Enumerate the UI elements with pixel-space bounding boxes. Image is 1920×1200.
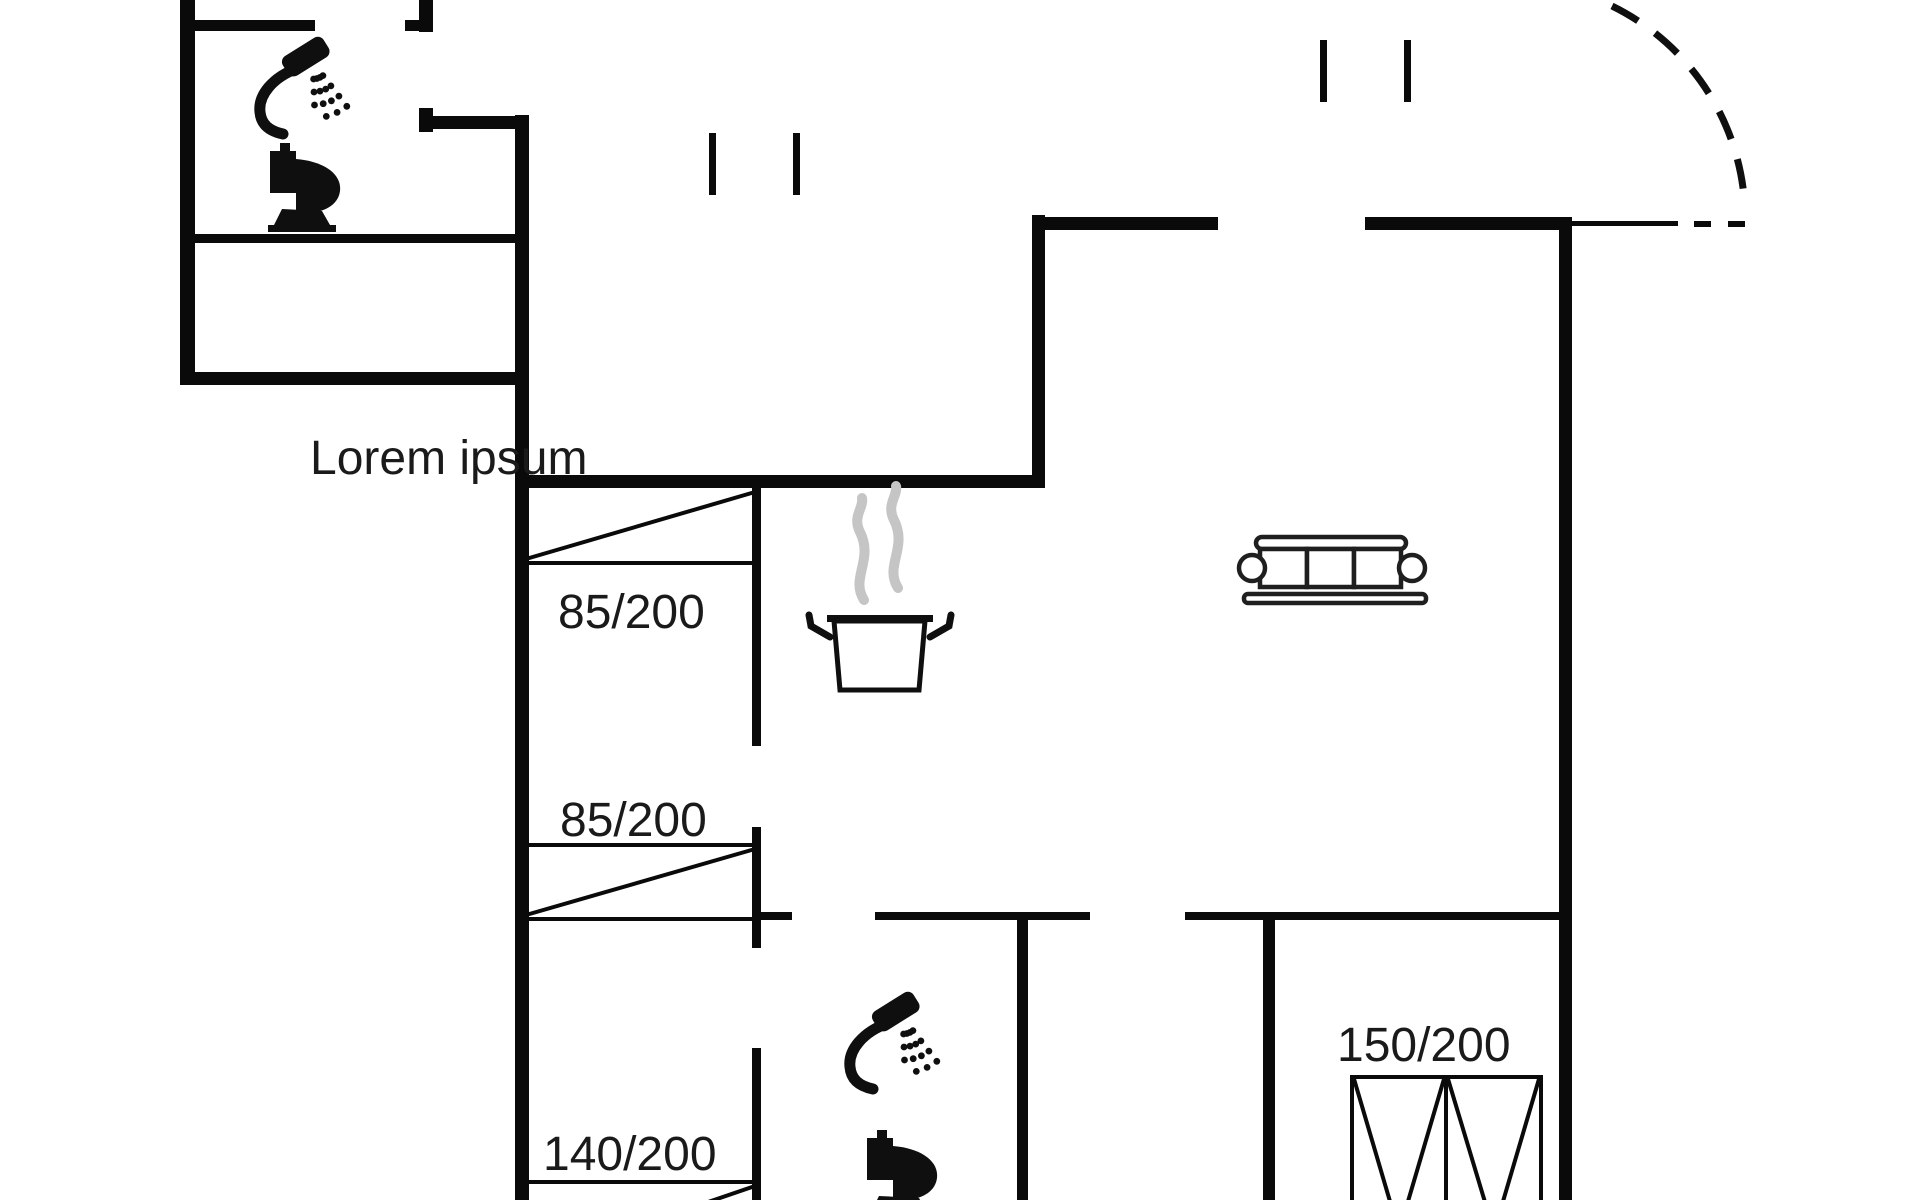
wall-segment — [515, 115, 529, 1200]
wall-segment — [1728, 221, 1745, 227]
wall-segment — [752, 488, 761, 746]
window-symbol-icon: 150/200 — [1337, 1019, 1541, 1200]
steam-icon — [891, 486, 898, 588]
wall-segment — [875, 912, 1090, 920]
floorplan-page: 85/200 85/200 140/200 150/200 Lorem ipsu… — [0, 0, 1920, 1200]
toilet-icon — [865, 1130, 937, 1200]
wall-segment — [180, 0, 195, 385]
wall-segment — [1694, 221, 1711, 227]
tick-mark — [1404, 40, 1411, 102]
sofa-icon — [1239, 537, 1426, 603]
wall-segment — [1263, 914, 1275, 1200]
steam-icon — [857, 498, 864, 600]
door-3: 140/200 — [517, 1128, 757, 1200]
shower-icon — [260, 34, 350, 134]
wall-segment — [752, 1048, 761, 1200]
boundary-tick-marks — [709, 40, 1411, 195]
wall-segment — [758, 912, 792, 920]
wall-segment — [1365, 217, 1565, 230]
wall-segment — [1559, 217, 1572, 1200]
tick-mark — [793, 133, 800, 195]
door-1: 85/200 — [517, 492, 757, 639]
dimension-label-door-2: 85/200 — [560, 794, 707, 847]
wall-segment — [1185, 912, 1566, 920]
shower-icon — [850, 989, 940, 1089]
door-2: 85/200 — [517, 794, 757, 919]
toilet-icon — [268, 143, 340, 232]
wall-segment — [1032, 215, 1045, 488]
dimension-label-window-1: 150/200 — [1337, 1019, 1511, 1072]
dimension-label-door-1: 85/200 — [558, 586, 705, 639]
room-label: Lorem ipsum — [310, 432, 587, 485]
wall-segment — [515, 475, 1045, 488]
door-swing-arc-icon — [1612, 6, 1744, 196]
wall-segment — [181, 20, 315, 31]
tick-mark — [1320, 40, 1327, 102]
wall-segment — [181, 234, 528, 243]
tick-mark — [709, 133, 716, 195]
cooking-pot-icon — [809, 486, 951, 690]
wall-segment — [419, 116, 529, 129]
wall-segment — [1572, 221, 1678, 226]
floorplan-drawing: 85/200 85/200 140/200 150/200 Lorem ipsu… — [0, 0, 1920, 1200]
wall-segment — [1043, 217, 1218, 230]
wall-segment — [1017, 914, 1028, 1200]
wall-segment — [419, 0, 433, 32]
wall-segment — [180, 372, 529, 385]
dimension-label-door-3: 140/200 — [543, 1128, 717, 1181]
